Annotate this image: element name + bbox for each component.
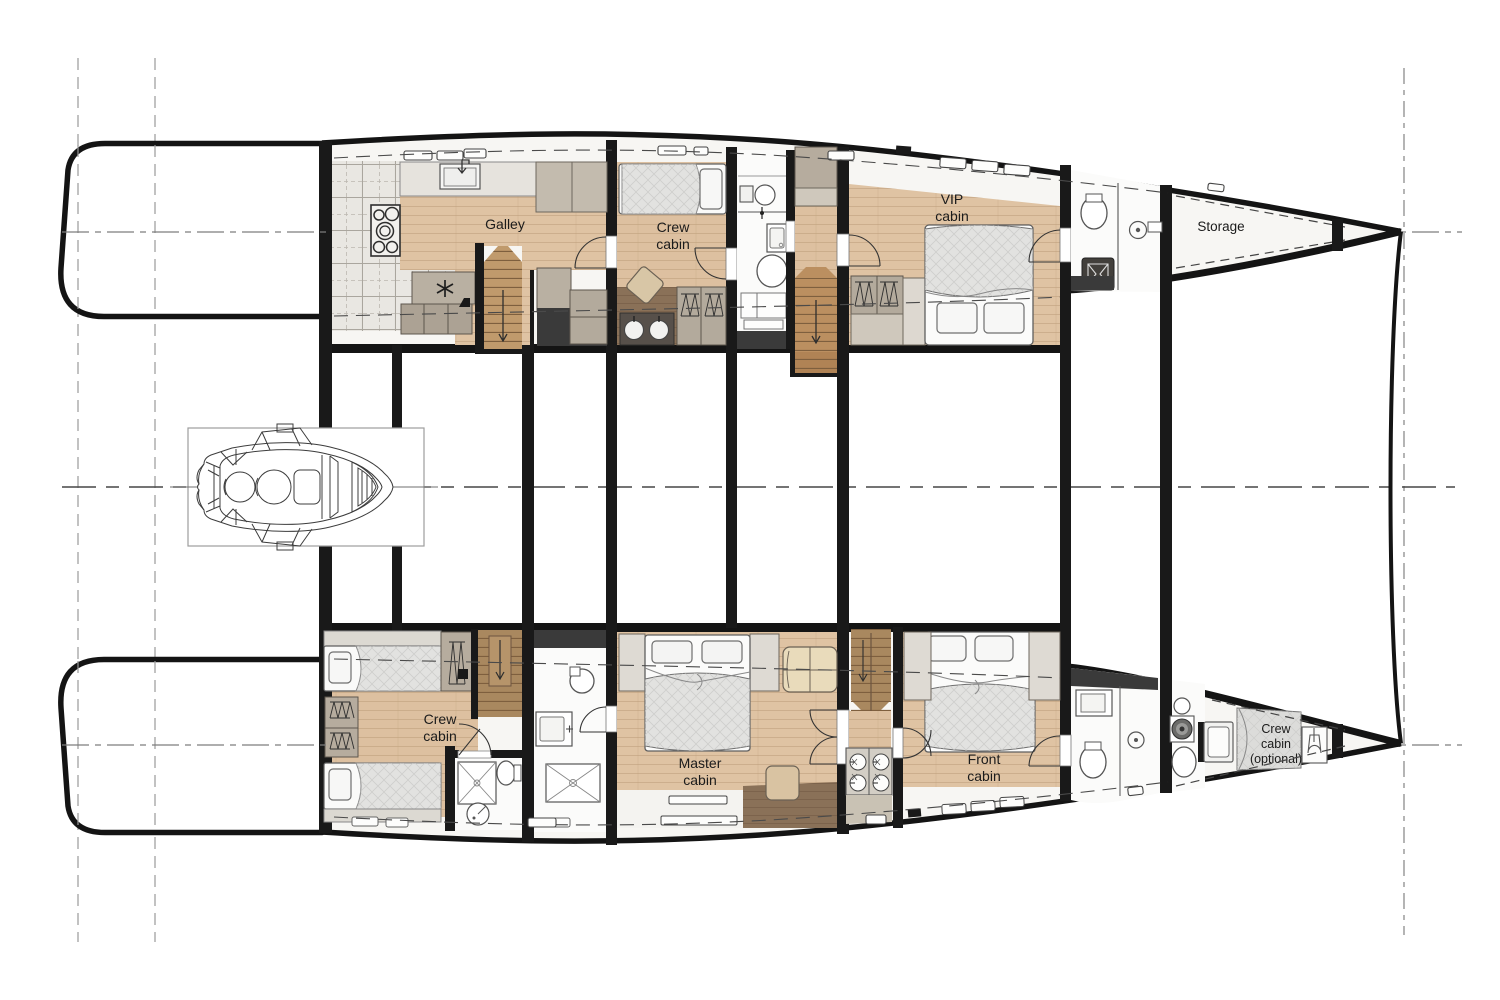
svg-text:cabin: cabin — [967, 768, 1000, 784]
svg-text:Storage: Storage — [1197, 219, 1244, 234]
svg-text:(optional): (optional) — [1250, 752, 1302, 766]
svg-text:cabin: cabin — [935, 208, 968, 224]
svg-text:cabin: cabin — [423, 728, 456, 744]
svg-text:cabin: cabin — [683, 772, 716, 788]
svg-text:Master: Master — [679, 755, 722, 771]
svg-text:Crew: Crew — [1261, 722, 1291, 736]
svg-text:VIP: VIP — [941, 191, 964, 207]
svg-text:Front: Front — [968, 751, 1001, 767]
svg-text:Crew: Crew — [657, 219, 691, 235]
svg-text:Galley: Galley — [485, 216, 525, 232]
svg-text:cabin: cabin — [656, 236, 689, 252]
svg-text:Crew: Crew — [424, 711, 458, 727]
svg-text:cabin: cabin — [1261, 737, 1291, 751]
